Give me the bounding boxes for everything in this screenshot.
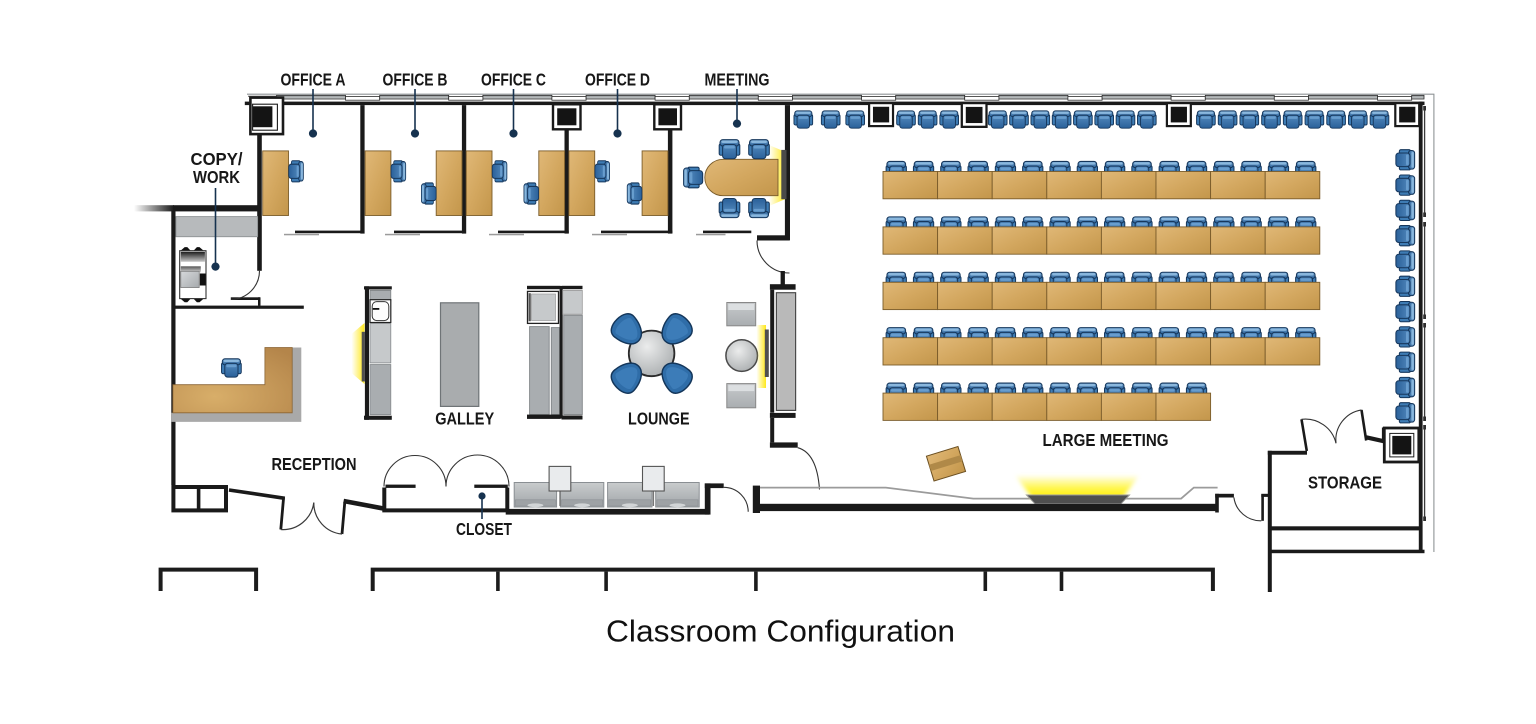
svg-text:LARGE MEETING: LARGE MEETING (1043, 430, 1169, 450)
svg-text:WORK: WORK (193, 167, 240, 187)
svg-text:LOUNGE: LOUNGE (628, 409, 690, 429)
svg-text:GALLEY: GALLEY (435, 409, 494, 429)
svg-text:OFFICE A: OFFICE A (281, 70, 346, 90)
svg-text:MEETING: MEETING (705, 70, 770, 90)
svg-text:OFFICE C: OFFICE C (481, 70, 546, 90)
svg-text:STORAGE: STORAGE (1308, 473, 1382, 493)
svg-text:CLOSET: CLOSET (456, 519, 512, 539)
svg-text:RECEPTION: RECEPTION (272, 454, 357, 474)
svg-text:Classroom Configuration: Classroom Configuration (606, 614, 955, 649)
svg-text:COPY/: COPY/ (191, 149, 243, 169)
svg-text:OFFICE D: OFFICE D (585, 70, 650, 90)
svg-text:OFFICE B: OFFICE B (383, 70, 448, 90)
